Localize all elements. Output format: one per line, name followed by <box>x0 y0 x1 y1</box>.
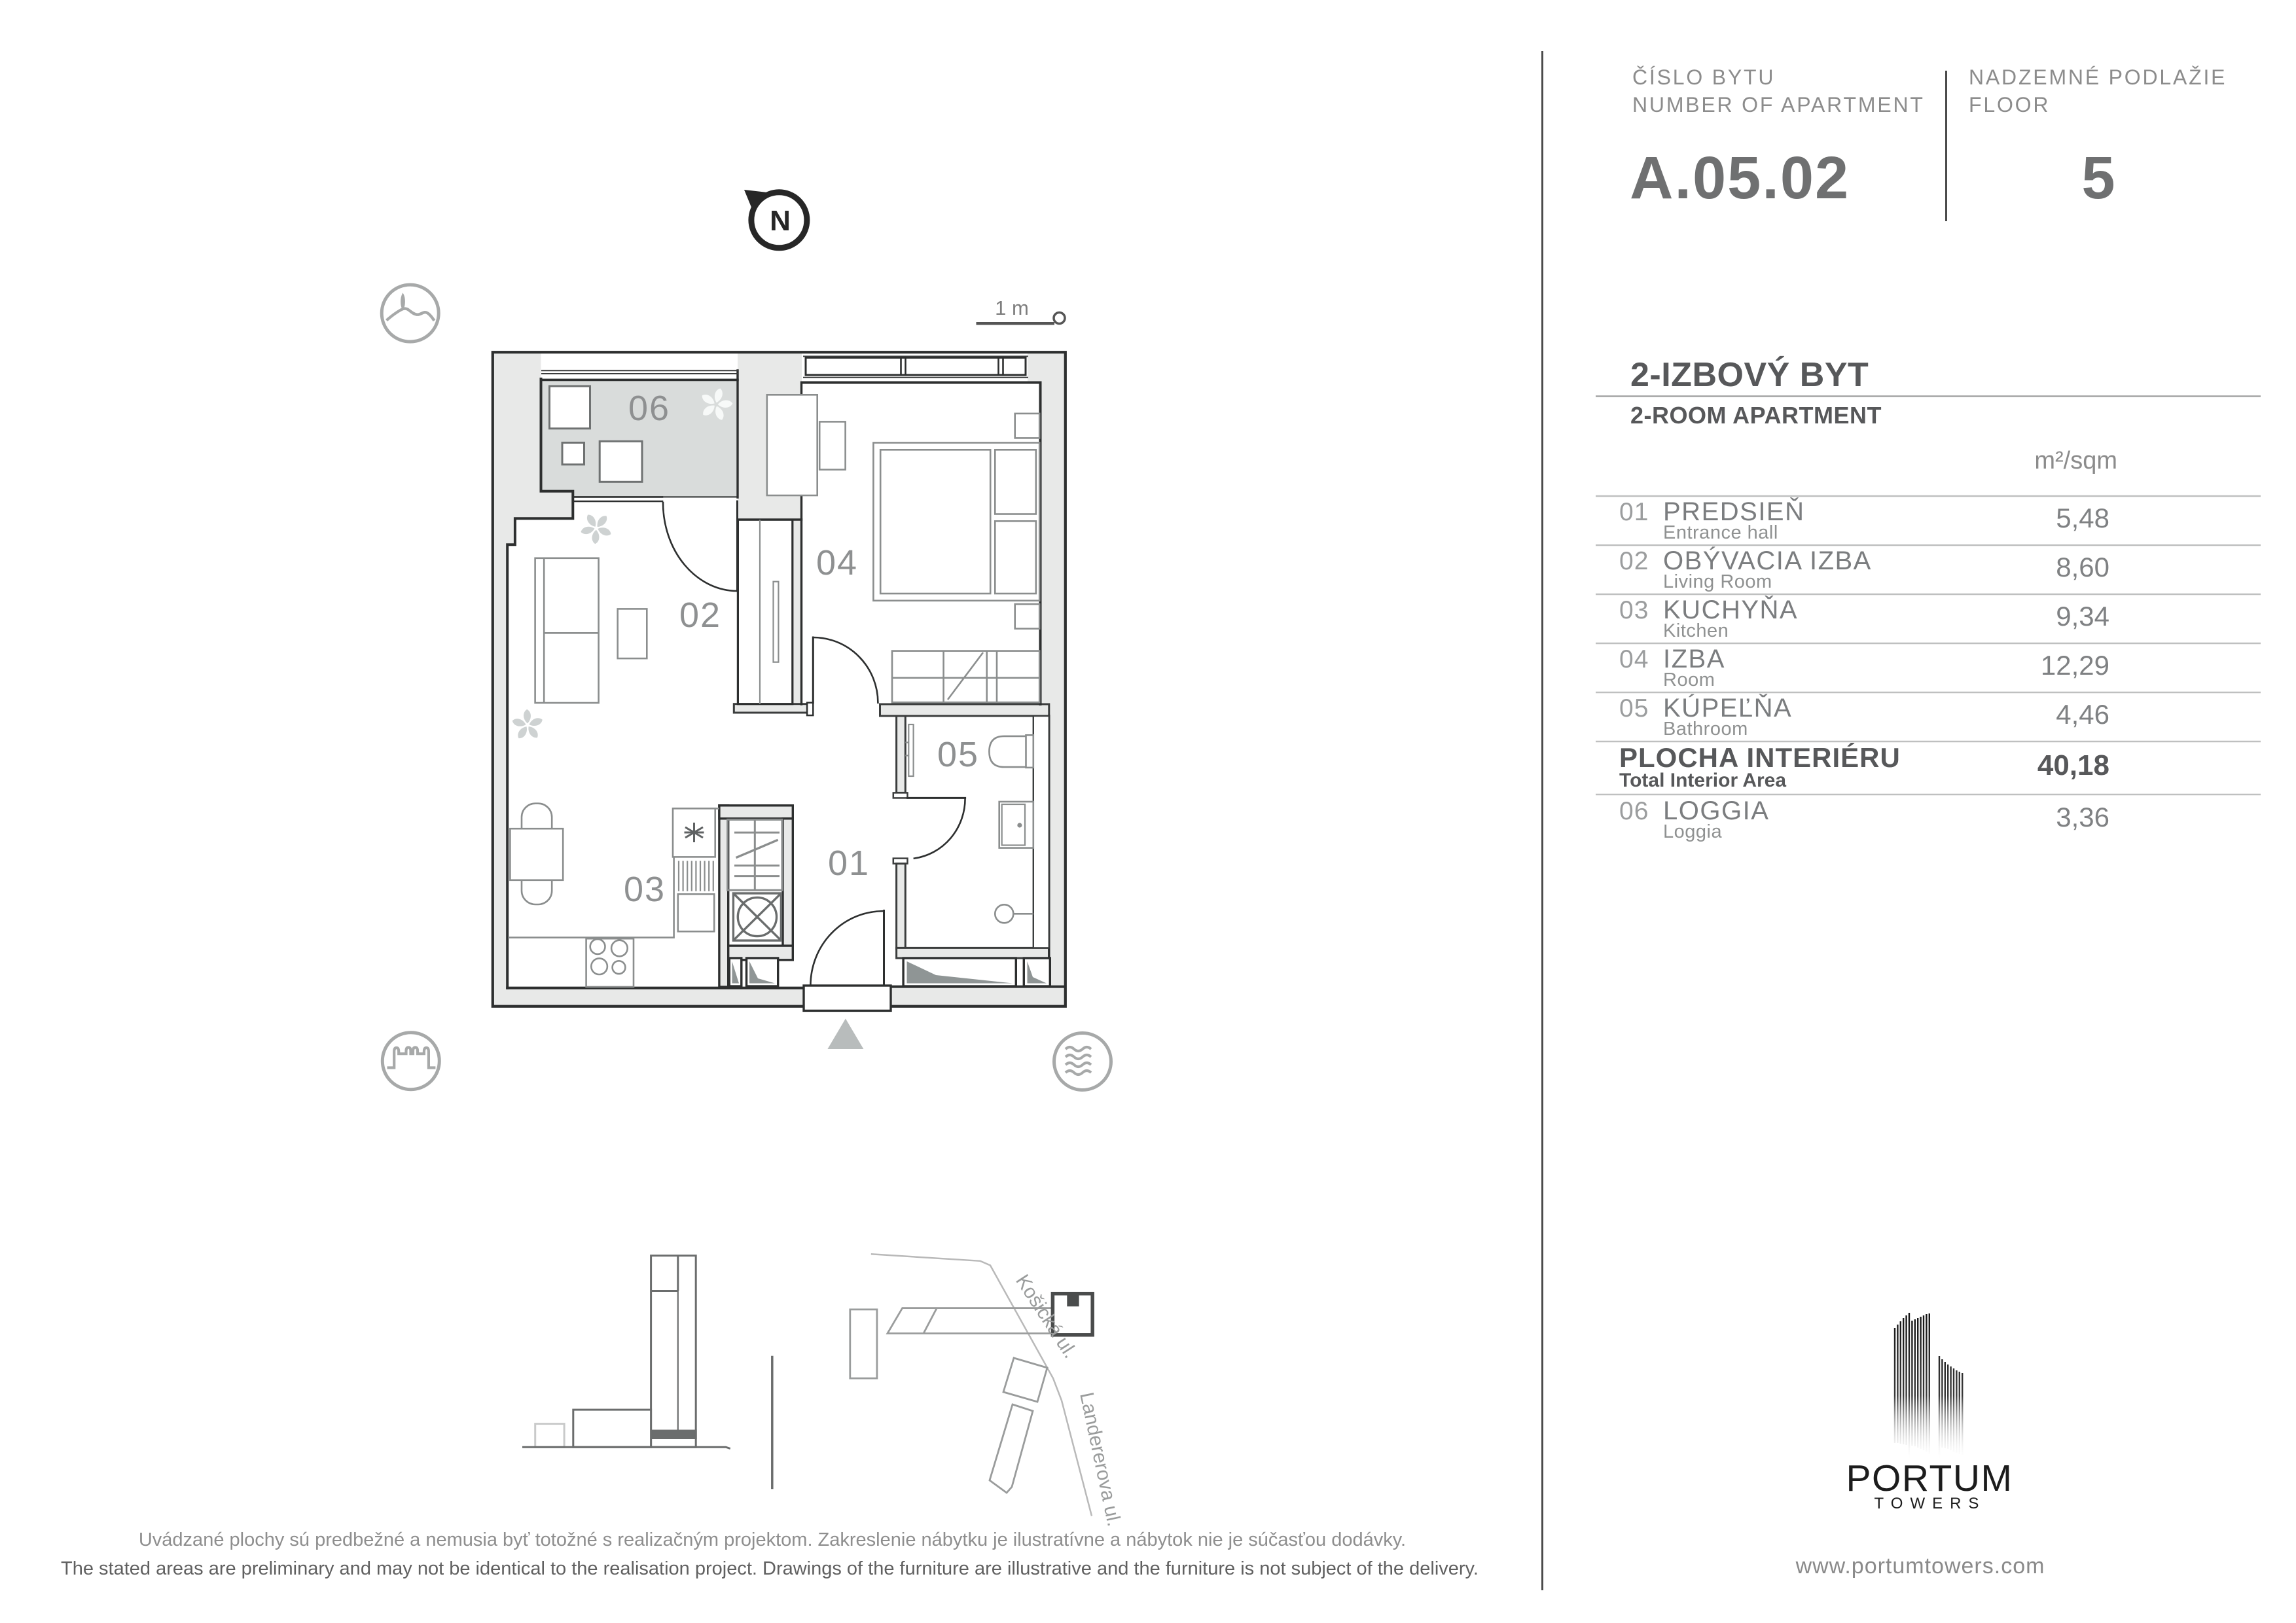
svg-text:05: 05 <box>937 735 979 774</box>
svg-text:NUMBER OF APARTMENT: NUMBER OF APARTMENT <box>1632 93 1925 116</box>
svg-text:Uvádzané plochy sú predbežné a: Uvádzané plochy sú predbežné a nemusia b… <box>139 1529 1406 1550</box>
svg-text:Kitchen: Kitchen <box>1663 620 1729 641</box>
svg-text:06: 06 <box>628 389 670 428</box>
svg-text:www.portumtowers.com: www.portumtowers.com <box>1795 1554 2045 1578</box>
svg-text:12,29: 12,29 <box>2041 650 2109 681</box>
svg-text:PLOCHA INTERIÉRU: PLOCHA INTERIÉRU <box>1619 742 1901 773</box>
svg-text:40,18: 40,18 <box>2037 749 2109 781</box>
svg-text:Bathroom: Bathroom <box>1663 719 1748 740</box>
svg-text:06: 06 <box>1619 797 1649 825</box>
svg-text:FLOOR: FLOOR <box>1969 93 2050 116</box>
svg-text:1 m: 1 m <box>995 296 1029 319</box>
svg-text:04: 04 <box>816 543 858 582</box>
svg-text:2-ROOM APARTMENT: 2-ROOM APARTMENT <box>1630 402 1882 429</box>
svg-text:Room: Room <box>1663 669 1715 690</box>
svg-text:ČÍSLO BYTU: ČÍSLO BYTU <box>1632 65 1775 89</box>
svg-text:8,60: 8,60 <box>2056 552 2109 582</box>
svg-text:Landererova ul.: Landererova ul. <box>1075 1391 1125 1529</box>
svg-text:N: N <box>770 205 791 237</box>
svg-text:2-IZBOVÝ BYT: 2-IZBOVÝ BYT <box>1630 355 1869 394</box>
svg-text:m²/sqm: m²/sqm <box>2034 447 2117 474</box>
svg-text:02: 02 <box>1619 547 1649 575</box>
svg-text:9,34: 9,34 <box>2056 601 2109 632</box>
svg-text:04: 04 <box>1619 645 1649 673</box>
svg-text:Total Interior Area: Total Interior Area <box>1619 770 1786 791</box>
svg-text:5: 5 <box>2081 145 2115 211</box>
svg-text:NADZEMNÉ PODLAŽIE: NADZEMNÉ PODLAŽIE <box>1969 65 2227 89</box>
svg-text:A.05.02: A.05.02 <box>1630 145 1850 211</box>
svg-text:TOWERS: TOWERS <box>1874 1495 1986 1512</box>
svg-text:Entrance hall: Entrance hall <box>1663 522 1778 543</box>
svg-text:03: 03 <box>624 870 666 909</box>
svg-text:Living Room: Living Room <box>1663 571 1772 592</box>
svg-text:The stated areas are prelimina: The stated areas are preliminary and may… <box>61 1558 1479 1579</box>
svg-text:PORTUM: PORTUM <box>1846 1457 2013 1499</box>
svg-text:01: 01 <box>828 844 870 883</box>
svg-text:01: 01 <box>1619 498 1649 526</box>
svg-text:03: 03 <box>1619 596 1649 624</box>
svg-text:3,36: 3,36 <box>2056 802 2109 832</box>
svg-text:4,46: 4,46 <box>2056 699 2109 730</box>
svg-text:Loggia: Loggia <box>1663 821 1722 842</box>
svg-text:05: 05 <box>1619 694 1649 722</box>
svg-text:5,48: 5,48 <box>2056 503 2109 533</box>
svg-text:02: 02 <box>679 596 721 635</box>
